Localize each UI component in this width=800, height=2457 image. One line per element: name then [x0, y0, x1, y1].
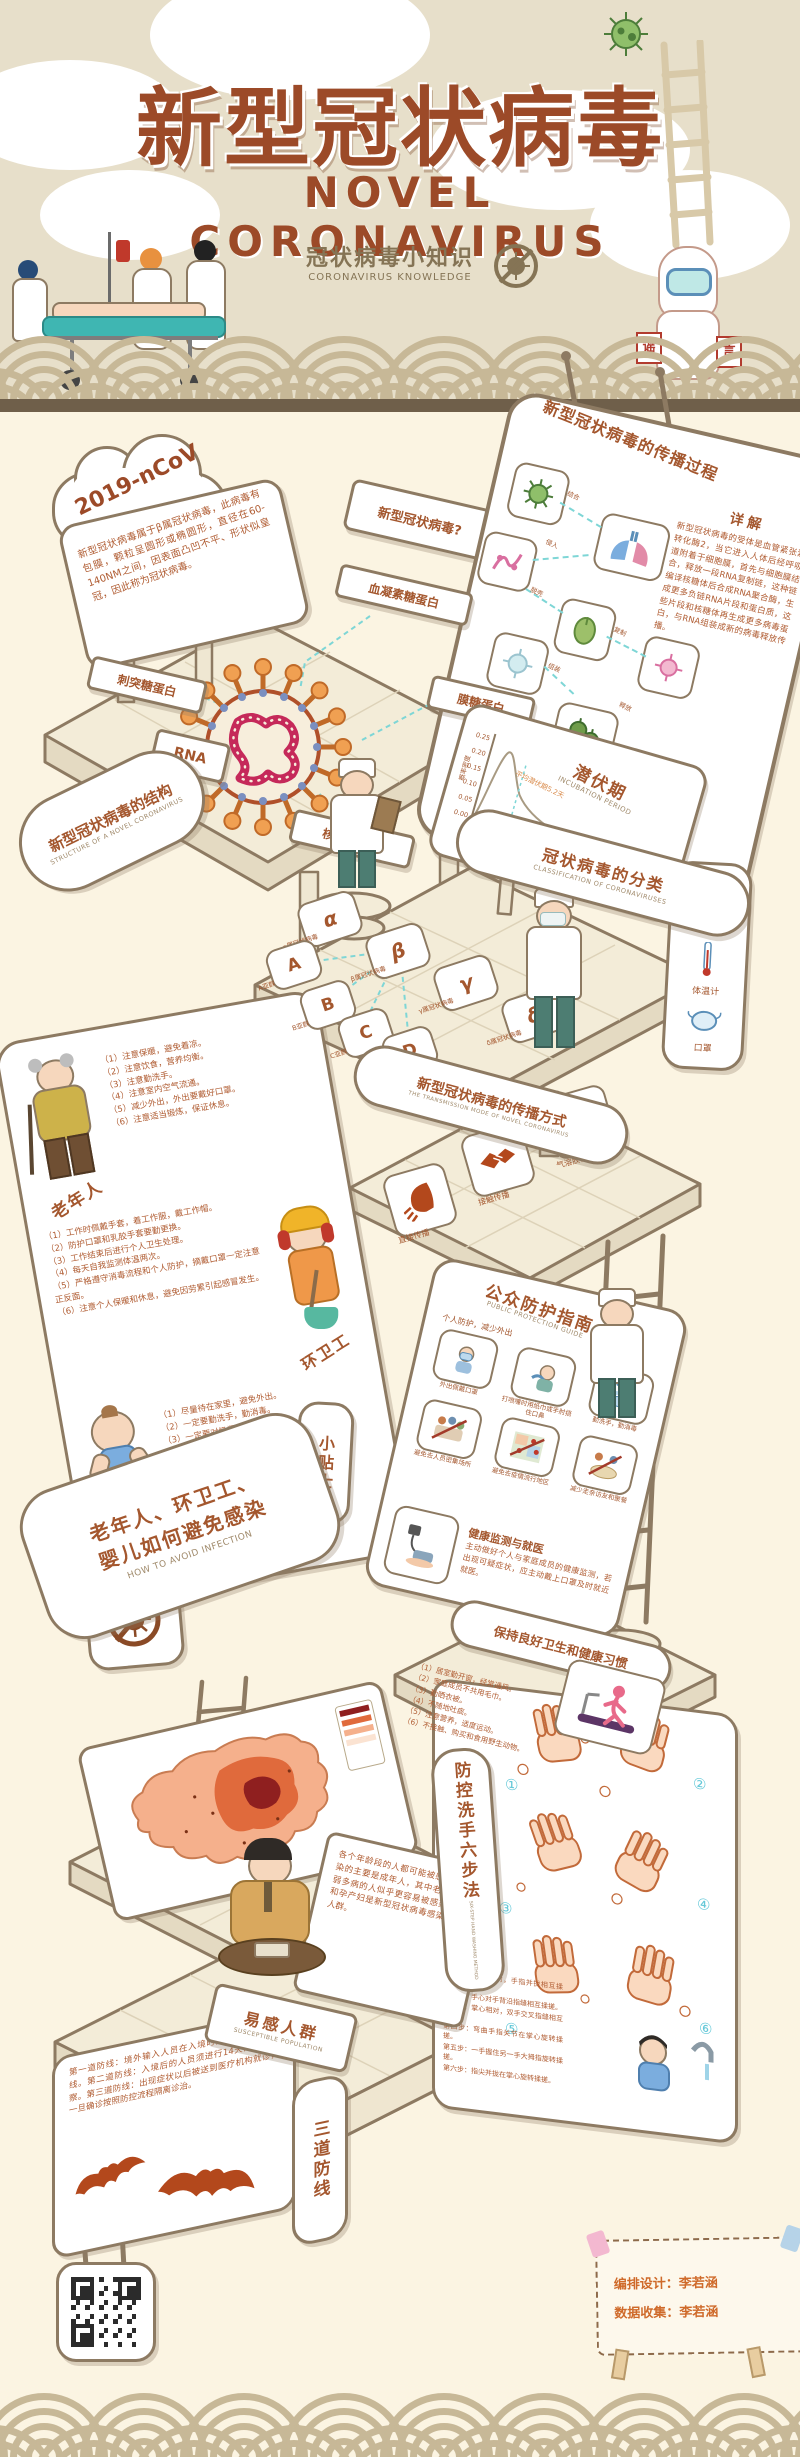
supplies-label: 体温计 — [692, 986, 720, 999]
cane — [28, 1105, 34, 1175]
process-step-label: 侵入 — [544, 538, 559, 551]
treadmill-runner-icon — [570, 1672, 651, 1741]
process-step-label: 复制 — [612, 625, 627, 638]
credit-data: 数据收集：李若涵 — [614, 2299, 800, 2321]
process-connector — [560, 502, 602, 528]
handwash-number: ⑥ — [699, 2019, 712, 2039]
process-step-label: 结合 — [566, 489, 581, 502]
thermometer-icon — [701, 941, 715, 976]
svg-text:0.20: 0.20 — [470, 746, 486, 758]
process-step-label: 脱壳 — [529, 586, 544, 599]
qr-sign — [56, 2262, 156, 2362]
process-detail-title: 详解 — [728, 508, 768, 536]
sitting-man-figure — [210, 1846, 330, 1996]
process-tile-replicate — [551, 596, 618, 663]
credit-design: 编排设计：李若涵 — [614, 2270, 800, 2292]
sneeze-icon — [396, 1176, 443, 1223]
doctor-figure-clipboard — [316, 758, 396, 908]
footer-wave-pattern — [0, 2352, 800, 2457]
incubation-avg-label: 平均潜伏期5.2天 — [514, 769, 566, 800]
handwash-number: ① — [505, 1775, 518, 1795]
svg-text:0.25: 0.25 — [475, 731, 491, 743]
process-tile-shed — [484, 630, 551, 697]
process-tile-virus — [505, 460, 572, 527]
doctor-figure-mask — [516, 888, 586, 1063]
svg-text:0.05: 0.05 — [457, 792, 473, 804]
process-tile-rna — [475, 529, 540, 594]
broom-head — [304, 1307, 338, 1329]
guide-tile: 避免去疫情流行地区 — [482, 1414, 570, 1490]
supplies-label: 口罩 — [693, 1043, 712, 1055]
cleaner-figure — [267, 1201, 359, 1341]
face-mask — [540, 912, 566, 926]
qr-code — [71, 2277, 141, 2347]
tie — [264, 1882, 272, 1912]
tray — [254, 1942, 290, 1958]
elderly-figure — [16, 1053, 110, 1184]
mask-icon — [687, 1009, 722, 1033]
map-legend — [334, 1699, 386, 1772]
handwash-number: ④ — [697, 1895, 710, 1915]
bp-monitor-tile — [381, 1503, 461, 1586]
credits-board: 编排设计：李若涵 数据收集：李若涵 — [595, 2236, 800, 2356]
process-tile-assemble — [635, 634, 702, 701]
guide-tile: 减少走亲访友和聚餐 — [560, 1432, 648, 1508]
guide-tile: 避免去人员密集场所 — [404, 1396, 492, 1472]
doctor-figure-ladder — [578, 1288, 650, 1418]
process-step-label: 释放 — [618, 701, 633, 714]
defense-sign: 三道防线 — [292, 2072, 348, 2248]
handwash-number: ② — [693, 1774, 706, 1794]
process-tile-lungs — [591, 511, 672, 583]
bp-monitor-icon — [397, 1519, 446, 1571]
question-sign-label: 新型冠状病毒? — [376, 501, 464, 539]
process-connector — [533, 554, 589, 561]
guide-tile: 外出佩戴口罩 — [419, 1325, 508, 1409]
handshake-icon — [475, 1140, 522, 1180]
process-connector — [606, 636, 646, 658]
guide-tile: 打喷嚏时用纸巾或手肘捂住口鼻 — [497, 1343, 586, 1427]
